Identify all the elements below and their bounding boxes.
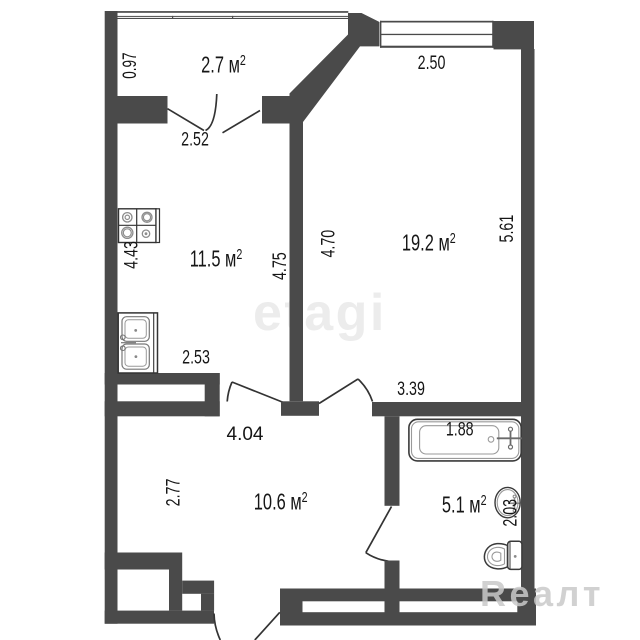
svg-text:3.39: 3.39 bbox=[397, 378, 425, 399]
svg-text:5.1 м2: 5.1 м2 bbox=[442, 491, 487, 518]
svg-text:4.04: 4.04 bbox=[227, 424, 264, 445]
svg-text:2.53: 2.53 bbox=[182, 347, 210, 368]
svg-text:4.43: 4.43 bbox=[121, 241, 142, 269]
svg-text:5.61: 5.61 bbox=[496, 215, 517, 243]
svg-text:2.52: 2.52 bbox=[181, 129, 209, 150]
svg-text:10.6 м2: 10.6 м2 bbox=[254, 488, 308, 515]
svg-text:2.7 м2: 2.7 м2 bbox=[201, 51, 246, 78]
svg-text:4.70: 4.70 bbox=[318, 230, 339, 258]
svg-text:19.2 м2: 19.2 м2 bbox=[402, 229, 456, 256]
svg-text:etagi: etagi bbox=[253, 284, 387, 342]
svg-text:2.03: 2.03 bbox=[499, 499, 520, 527]
svg-text:4.75: 4.75 bbox=[269, 252, 290, 280]
svg-text:1.88: 1.88 bbox=[446, 418, 474, 439]
svg-text:Reaлт: Reaлт bbox=[480, 573, 604, 614]
svg-text:2.77: 2.77 bbox=[163, 479, 184, 507]
svg-text:0.97: 0.97 bbox=[120, 52, 141, 78]
svg-text:11.5 м2: 11.5 м2 bbox=[190, 245, 243, 272]
svg-text:2.50: 2.50 bbox=[418, 52, 446, 73]
